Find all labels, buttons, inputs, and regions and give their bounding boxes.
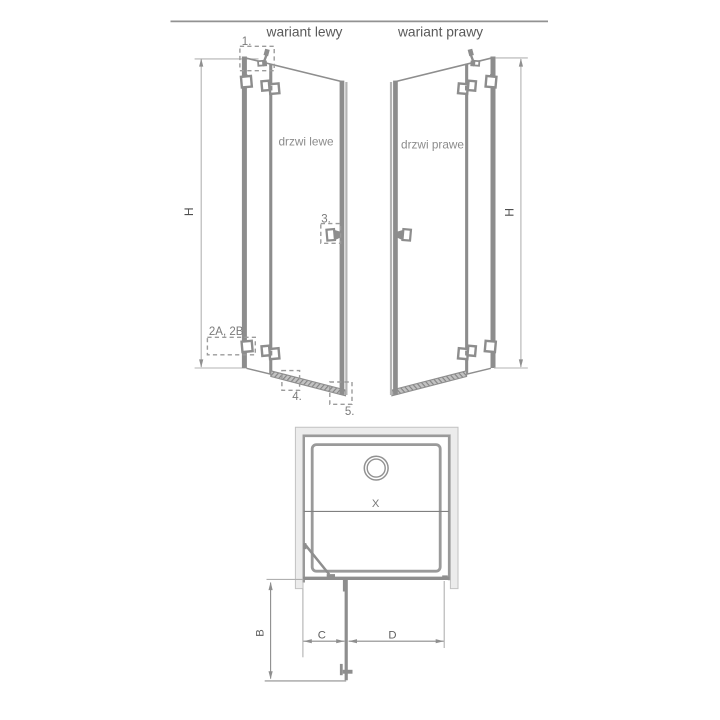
svg-text:wariant prawy: wariant prawy bbox=[397, 25, 483, 40]
svg-text:drzwi prawe: drzwi prawe bbox=[401, 138, 464, 152]
svg-text:5.: 5. bbox=[345, 406, 355, 418]
svg-text:X: X bbox=[372, 498, 380, 510]
svg-text:drzwi lewe: drzwi lewe bbox=[278, 135, 334, 149]
svg-text:B: B bbox=[254, 629, 266, 637]
svg-text:wariant lewy: wariant lewy bbox=[266, 25, 343, 40]
svg-text:D: D bbox=[388, 630, 396, 642]
svg-text:2A, 2B: 2A, 2B bbox=[209, 326, 244, 338]
svg-text:3.: 3. bbox=[321, 214, 331, 226]
svg-text:H: H bbox=[182, 207, 196, 216]
svg-text:C: C bbox=[318, 630, 326, 642]
svg-text:H: H bbox=[503, 208, 517, 217]
svg-text:4.: 4. bbox=[292, 391, 302, 403]
svg-text:1.: 1. bbox=[242, 36, 252, 48]
